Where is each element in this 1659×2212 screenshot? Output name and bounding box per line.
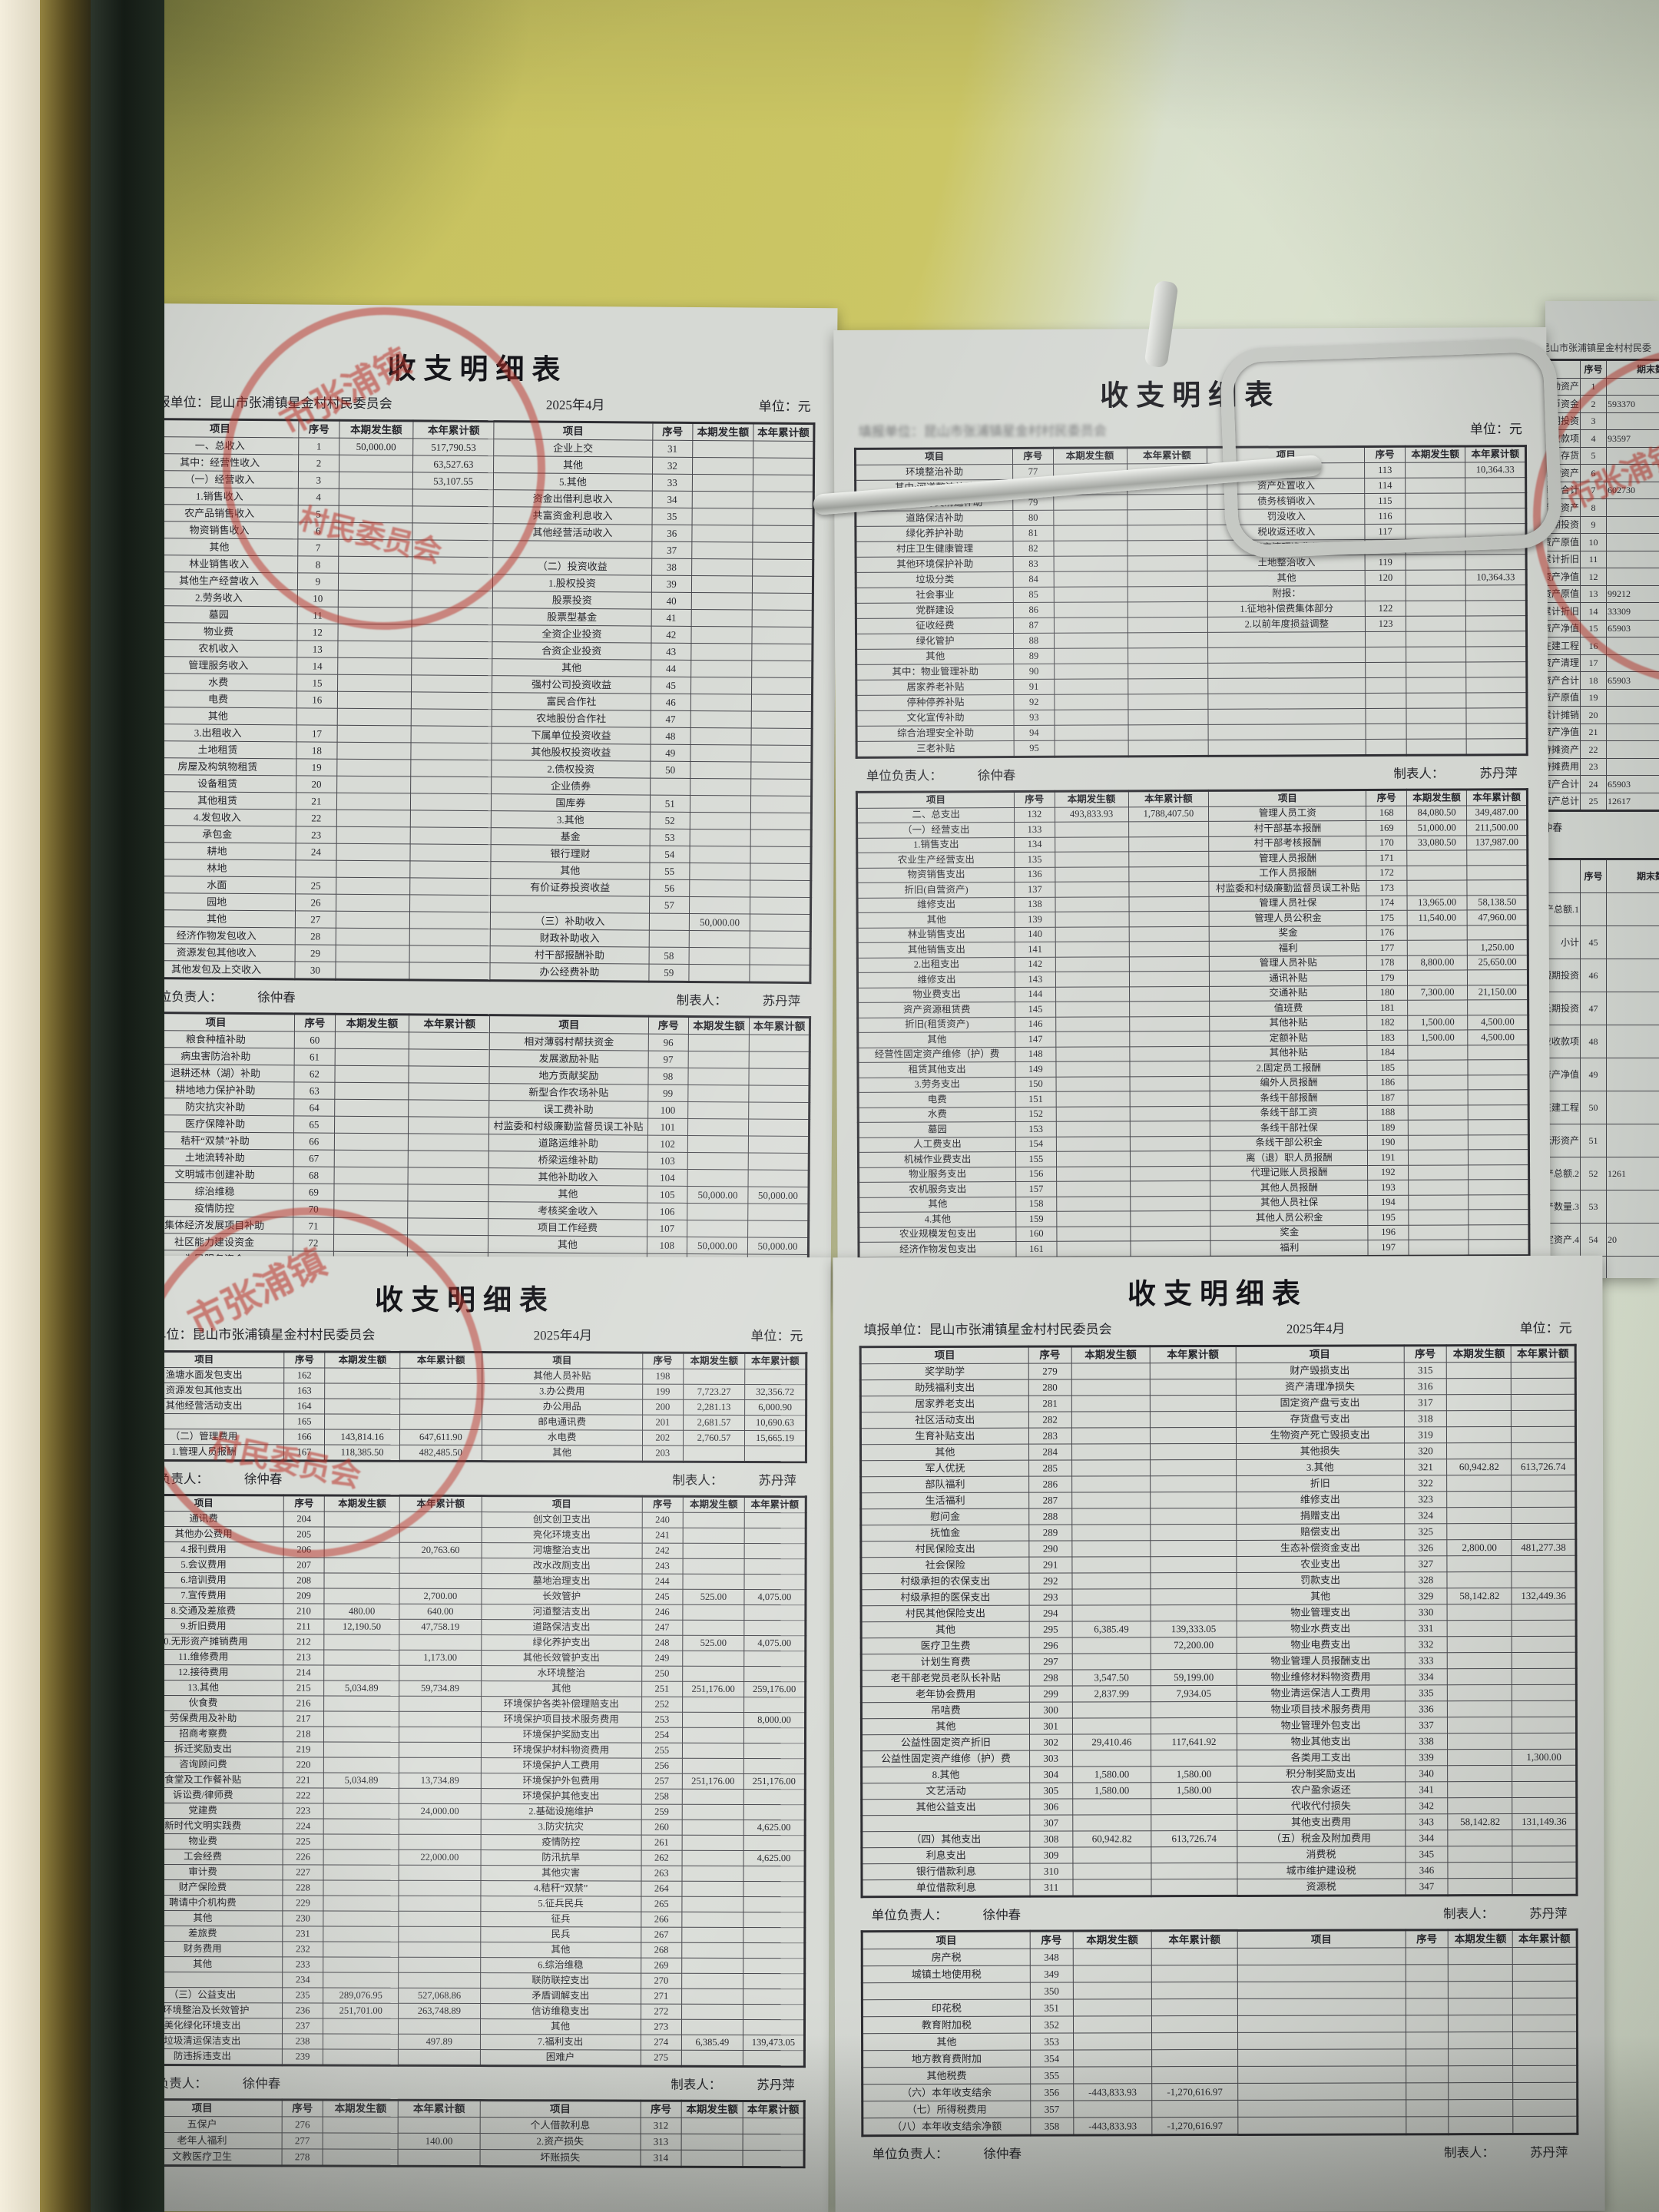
table-cell: 259: [641, 1804, 682, 1820]
table-cell: 93: [1014, 710, 1054, 725]
table-cell: 173: [1366, 880, 1406, 896]
table-cell: 3.劳务支出: [858, 1077, 1015, 1092]
table-cell: 304: [1029, 1767, 1072, 1783]
table-cell: [1130, 1226, 1210, 1241]
table-cell: [682, 1804, 743, 1820]
table-cell: 283: [1028, 1428, 1071, 1444]
table-cell: 331: [1405, 1621, 1448, 1637]
table-cell: 183: [1367, 1030, 1407, 1045]
table-cell: 209: [283, 1588, 324, 1604]
table-cell: [1448, 1846, 1512, 1863]
table-cell: [1409, 1240, 1469, 1256]
table-cell: [689, 947, 750, 965]
table-cell: 农业规模发包支出: [859, 1227, 1016, 1242]
table-row: 经营性短期投资46: [1545, 959, 1659, 992]
table-cell: [752, 677, 813, 695]
table-cell: [681, 2019, 743, 2035]
table-cell: [750, 880, 811, 898]
table-row: 文教医疗卫生278坏账损失314: [121, 2148, 804, 2167]
table-cell: 330: [1405, 1604, 1448, 1621]
table-cell: （二）投资收益: [493, 558, 651, 575]
column-header: 本期发生额: [681, 2101, 743, 2118]
table-cell: [1055, 1046, 1129, 1061]
table-cell: 70: [293, 1200, 334, 1217]
table-cell: 福利: [1210, 1240, 1368, 1257]
table-cell: [1053, 495, 1127, 510]
table-cell: [751, 728, 812, 746]
table-cell: 资金出借利息收入: [494, 490, 652, 508]
table-cell: 租赁其他支出: [858, 1062, 1015, 1078]
table-cell: 农业支出: [1237, 1556, 1405, 1573]
table-cell: 村监委和村级廉勤监督员误工补贴: [1209, 881, 1366, 896]
table-cell: 村民其他保险支出: [861, 1605, 1029, 1622]
table-cell: [334, 1116, 409, 1134]
table-cell: 346: [1405, 1863, 1448, 1879]
column-header: 序号: [1404, 1346, 1447, 1363]
table-cell: 折旧: [1236, 1475, 1404, 1492]
table-cell: [1151, 1524, 1237, 1540]
table-cell: [1407, 1000, 1468, 1015]
balance-sheet-operating-assets-table: 资产序号期末数1.经营性资产总额小计45经营性短期投资46经营性长期投资47经营…: [1545, 858, 1659, 1278]
table-cell: [1054, 648, 1128, 664]
table-cell: [1607, 654, 1659, 672]
table-cell: 49: [650, 744, 690, 761]
table-cell: 297: [1029, 1654, 1072, 1670]
strip-table-window: 资产序号期末数流动资产：1货币资金2593370短期投资3应收款项493597存…: [1545, 359, 1659, 1278]
column-header: 本期发生额: [323, 2100, 398, 2117]
table-cell: [1056, 1241, 1130, 1257]
table-cell: [1407, 940, 1468, 955]
table-cell: 32,356.72: [745, 1384, 806, 1399]
table-cell: 14: [1581, 603, 1607, 621]
table-cell: [1512, 1507, 1576, 1523]
table-cell: 65903: [1607, 620, 1659, 637]
table-cell: [1448, 1685, 1512, 1701]
table-cell: 1.经营性资产总额: [1545, 893, 1581, 926]
table-cell: 村监委和村级廉勤监督员误工补贴: [489, 1118, 647, 1135]
table-cell: [296, 708, 337, 725]
table-cell: [399, 1834, 481, 1849]
column-header: 序号: [284, 1352, 325, 1368]
table-row: 流动资产合计7602730: [1545, 482, 1659, 499]
table-cell: 村级承担的农保支出: [861, 1573, 1029, 1590]
table-cell: 28: [295, 928, 336, 945]
table-cell: [335, 1048, 409, 1066]
table-cell: [1055, 1002, 1129, 1017]
table-cell: 党群建设: [856, 603, 1013, 619]
table-cell: [1513, 2099, 1578, 2116]
table-cell: 其他人员公积金: [1210, 1210, 1368, 1226]
table-row: 经营性无形资产51: [1545, 1124, 1659, 1157]
table-cell: [1130, 1076, 1210, 1091]
expense-table-rows-276-314: 项目序号本期发生额本年累计额项目序号本期发生额本年累计额五保户276个人借款利息…: [121, 2098, 806, 2168]
table-cell: [744, 1620, 806, 1635]
table-cell: 207: [283, 1558, 324, 1573]
table-cell: [1449, 1964, 1513, 1981]
table-cell: [744, 1651, 806, 1666]
table-cell: [1055, 986, 1129, 1002]
table-cell: [1208, 709, 1366, 725]
table-cell: [1512, 1878, 1577, 1895]
table-cell: [750, 965, 810, 983]
table-cell: 345: [1405, 1846, 1448, 1863]
table-cell: 260: [641, 1820, 682, 1835]
table-cell: 349: [1030, 1965, 1073, 1982]
table-cell: [690, 694, 751, 711]
table-cell: 174: [1366, 896, 1406, 911]
table-row: 食堂及工作餐补贴2215,034.8913,734.89环境保护外包费用2572…: [122, 1772, 805, 1789]
maker-name: 苏丹萍: [1479, 766, 1518, 780]
table-row: 部队福利286折旧322: [861, 1475, 1576, 1492]
table-cell: 85: [1013, 587, 1053, 602]
table-cell: [334, 1099, 409, 1117]
table-cell: [1406, 739, 1467, 755]
table-cell: 42: [651, 626, 691, 643]
table-cell: 4.当年新购建的固定资产: [1545, 1224, 1581, 1257]
table-cell: 91: [1014, 679, 1054, 694]
table-row: 1.管理人员报酬167118,385.50482,485.50其他203: [123, 1444, 806, 1462]
table-row: 三老补贴95: [856, 739, 1527, 758]
table-cell: 误工费补助: [489, 1101, 647, 1118]
table-cell: 193: [1368, 1180, 1408, 1195]
column-header: 本期发生额: [683, 1496, 744, 1512]
table-cell: 墓地治理支出: [482, 1574, 642, 1590]
table-cell: 54: [1581, 1224, 1607, 1257]
strip-org-line: 昆山市张浦镇星金村村民委: [1545, 341, 1659, 354]
table-cell: [743, 1881, 805, 1896]
table-cell: [323, 2117, 398, 2133]
table-cell: 107: [647, 1220, 687, 1237]
table-footer: 单位负责人：徐仲春 制表人：苏丹萍: [872, 1903, 1568, 1923]
table-cell: 19: [1581, 689, 1607, 707]
table-cell: [399, 1573, 482, 1588]
table-cell: 72,200.00: [1151, 1637, 1237, 1653]
table-cell: 34: [652, 491, 693, 508]
table-cell: 其他: [856, 649, 1014, 665]
table-row: 应收款项493597: [1545, 430, 1659, 448]
table-cell: [1408, 1120, 1469, 1135]
table-cell: 计划生育费: [861, 1654, 1029, 1671]
column-header: 本年累计额: [745, 1353, 806, 1369]
table-cell: [744, 1558, 806, 1574]
table-cell: 80: [1013, 510, 1053, 525]
table-cell: 177: [1367, 940, 1407, 955]
table-cell: 9: [298, 573, 339, 590]
table-cell: 办公经费补助: [490, 963, 648, 982]
table-cell: 172: [1366, 866, 1406, 881]
table-cell: 30: [295, 962, 336, 979]
table-row: 无形资产原值19: [1545, 689, 1659, 707]
table-row: （三）公益支出235289,076.95527,068.86矛盾调解支出271: [122, 1987, 805, 2004]
table-cell: [334, 1133, 409, 1151]
table-row: 固定资产清理17: [1545, 654, 1659, 672]
table-cell: 文化宣传补助: [856, 710, 1014, 727]
table-cell: 6.综治维稳: [480, 1958, 641, 1974]
table-cell: 固定资产盘亏支出: [1236, 1395, 1404, 1412]
table-cell: [683, 1512, 744, 1528]
table-cell: [1366, 708, 1406, 724]
table-cell: [1469, 1210, 1529, 1225]
table-cell: [1512, 1830, 1577, 1846]
table-cell: 65903: [1607, 672, 1659, 690]
table-cell: [743, 2004, 804, 2019]
table-cell: [690, 727, 751, 745]
table-row: 其他230征兵266: [122, 1910, 805, 1927]
table-row: 货币资金2593370: [1545, 396, 1659, 413]
column-header: 本年累计额: [743, 2101, 804, 2118]
table-cell: 单位借款利息: [862, 1879, 1030, 1897]
table-cell: 财政补助收入: [491, 929, 649, 947]
table-row: 审计费227其他灾害263: [122, 1864, 805, 1881]
table-cell: [338, 641, 412, 658]
table-cell: [1512, 1947, 1577, 1964]
table-cell: 利息支出: [862, 1847, 1030, 1864]
table-cell: 绿化养护补助: [856, 526, 1013, 542]
table-cell: 253: [641, 1712, 682, 1727]
table-cell: [1055, 956, 1129, 972]
table-cell: [323, 1880, 399, 1896]
table-cell: 停种停养补贴: [856, 695, 1014, 711]
table-cell: [1056, 1181, 1130, 1197]
table-cell: 266: [641, 1912, 681, 1927]
column-header: 序号: [1013, 448, 1053, 464]
table-cell: 其他补贴: [1210, 1015, 1367, 1031]
table-cell: 1,580.00: [1151, 1766, 1237, 1782]
table-cell: [1151, 1750, 1237, 1766]
table-cell: 215: [283, 1681, 324, 1696]
table-cell: [753, 441, 814, 459]
table-cell: 24: [1581, 776, 1607, 793]
table-cell: 132,449.36: [1512, 1588, 1576, 1604]
table-row: 减：累计摊销20: [1545, 707, 1659, 724]
table-cell: [690, 846, 750, 863]
table-cell: 其他: [494, 456, 652, 474]
page-income-detail-3: 收支明细表 填报单位：昆山市张浦镇星金村村民委员会 2025年4月 单位：元 项…: [97, 1256, 830, 2212]
table-row: 利息支出309消费税345: [862, 1846, 1577, 1863]
table-cell: [1056, 1106, 1130, 1121]
table-cell: 613,726.74: [1151, 1830, 1237, 1846]
table-cell: 经营性短期投资: [1545, 959, 1581, 992]
table-cell: 100: [647, 1101, 688, 1118]
table-cell: [1129, 971, 1210, 986]
table-cell: [323, 1803, 399, 1819]
table-cell: [412, 624, 492, 642]
table-cell: 无形资产净值: [1545, 724, 1581, 741]
table-cell: 10,690.63: [744, 1415, 806, 1430]
table-cell: 212: [283, 1634, 324, 1650]
table-cell: 物业管理外包支出: [1237, 1717, 1405, 1734]
table-row: 老年人福利277140.002.资产损失313: [121, 2132, 804, 2150]
table-cell: [1129, 1031, 1210, 1046]
table-row: 军人优抚2853.其他32160,942.82613,726.74: [861, 1459, 1576, 1476]
table-cell: [324, 1650, 399, 1665]
column-header: 本期发生额: [693, 422, 753, 441]
table-cell: 其他: [861, 1444, 1029, 1461]
column-header: 本期发生额: [335, 1014, 409, 1032]
table-cell: [1406, 662, 1467, 677]
table-cell: 58,142.82: [1448, 1814, 1512, 1830]
table-cell: 4.秸秆“双禁”: [481, 1881, 641, 1897]
table-cell: 长期待摊资产: [1545, 741, 1581, 759]
table-cell: 24: [296, 843, 336, 860]
table-cell: 其他长效管护支出: [481, 1651, 641, 1667]
corner-shadow: [138, 0, 599, 323]
table-cell: [1366, 647, 1406, 662]
table-cell: [1073, 2050, 1151, 2067]
table-cell: 310: [1030, 1863, 1073, 1879]
table-cell: 202: [642, 1430, 683, 1445]
table-row: 公益性固定资产折旧30229,410.46117,641.92物业其他支出338: [862, 1733, 1577, 1750]
table-cell: 有价证券投资收益: [491, 879, 649, 896]
table-row: 房产税348: [862, 1947, 1577, 1965]
table-cell: [1054, 556, 1128, 571]
table-cell: [743, 2050, 804, 2066]
table-cell: [1151, 1492, 1237, 1508]
table-cell: 13,734.89: [399, 1773, 481, 1788]
table-row: 公益性固定资产维修（护）费303各类用工支出3391,300.00: [862, 1749, 1577, 1767]
table-cell: [338, 539, 412, 557]
table-cell: [1465, 555, 1526, 570]
table-cell: [1056, 1211, 1130, 1227]
table-cell: 53: [1581, 1190, 1607, 1224]
table-cell: [323, 2034, 399, 2049]
table-cell: [1071, 1492, 1150, 1508]
table-cell: [691, 660, 752, 677]
table-cell: 156: [1016, 1167, 1056, 1182]
table-cell: [691, 592, 752, 610]
table-cell: [1054, 633, 1128, 648]
table-cell: 物业项目技术服务费用: [1237, 1701, 1405, 1718]
table-cell: 其中：物业管理补助: [856, 664, 1014, 680]
table-cell: [336, 945, 410, 962]
column-header: 本年累计额: [398, 2100, 480, 2117]
table-row: 固定资产净值1565903: [1545, 620, 1659, 637]
table-cell: [1055, 942, 1129, 957]
table-cell: [1150, 1395, 1236, 1411]
table-cell: [683, 1558, 744, 1574]
table-cell: [743, 1804, 805, 1820]
table-cell: 1.销售支出: [857, 837, 1015, 853]
table-cell: 234: [283, 1972, 323, 1988]
table-cell: [410, 912, 491, 929]
table-cell: [1512, 1442, 1576, 1459]
table-cell: [1054, 587, 1128, 602]
table-cell: [1449, 2099, 1513, 2116]
table-cell: [1408, 1150, 1469, 1165]
table-cell: 55: [649, 863, 690, 879]
table-cell: 221: [283, 1773, 323, 1788]
table-cell: 64: [294, 1099, 335, 1116]
table-cell: [1072, 1589, 1151, 1605]
table-cell: [1467, 880, 1528, 896]
table-cell: 308: [1030, 1831, 1073, 1847]
table-cell: [1607, 926, 1659, 959]
table-cell: 147: [1015, 1031, 1055, 1047]
table-cell: [1054, 541, 1128, 556]
table-cell: 291: [1029, 1557, 1072, 1573]
table-cell: [1130, 1181, 1210, 1196]
table-cell: 185: [1367, 1060, 1407, 1075]
table-cell: [681, 2004, 743, 2019]
table-cell: 疫情防控: [481, 1835, 641, 1851]
table-cell: 66: [293, 1133, 334, 1150]
table-cell: 1,173.00: [399, 1650, 482, 1665]
table-cell: [1409, 1194, 1469, 1210]
table-cell: 1261: [1607, 1157, 1659, 1190]
table-cell: 管理人员补贴: [1210, 955, 1367, 971]
table-row: 渔塘水面发包支出162其他人员补贴198: [124, 1367, 806, 1384]
table-cell: 长效管护: [482, 1589, 642, 1605]
table-cell: [1406, 616, 1466, 631]
table-cell: 3: [298, 472, 339, 488]
table-cell: [1128, 678, 1208, 694]
table-cell: 3: [1581, 412, 1607, 430]
table-cell: 108: [647, 1237, 687, 1253]
table-cell: 48: [651, 727, 691, 744]
table-cell: [1448, 1750, 1512, 1766]
table-cell: 2,700.00: [399, 1588, 482, 1604]
table-cell: 314: [641, 2150, 681, 2167]
table-cell: [688, 1084, 749, 1102]
table-cell: [398, 2117, 480, 2133]
table-cell: 90: [1014, 664, 1054, 679]
table-cell: [748, 1136, 809, 1154]
table-cell: 其他: [861, 1621, 1029, 1638]
report-date: 2025年4月: [1286, 1318, 1346, 1337]
table-cell: 301: [1029, 1718, 1072, 1734]
responsible-label: 单位负责人：: [872, 1908, 948, 1922]
table-row: 其他经营活动支出164办公用品2002,281.136,000.90: [124, 1398, 806, 1415]
table-row: 吊唁费300物业项目技术服务费用336: [861, 1700, 1576, 1718]
table-cell: 89: [1014, 648, 1054, 664]
column-header: 本年累计额: [744, 1496, 806, 1512]
table-cell: [399, 1911, 481, 1926]
table-cell: 162: [284, 1368, 325, 1383]
table-cell: [336, 776, 411, 793]
table-cell: [1607, 551, 1659, 568]
table-cell: 322: [1404, 1475, 1447, 1492]
table-cell: [862, 1815, 1030, 1832]
table-cell: 300: [1029, 1702, 1072, 1718]
table-cell: [399, 1558, 482, 1573]
table-cell: [1053, 525, 1127, 541]
table-cell: 12: [1581, 568, 1607, 586]
table-cell: 175: [1367, 910, 1407, 926]
table-row: 五保户276个人借款利息312: [121, 2116, 804, 2134]
table-cell: 管理人员公积金: [1209, 911, 1366, 926]
table-cell: [333, 1200, 408, 1218]
table-cell: 股票型基金: [493, 608, 651, 626]
table-row: 党建费22324,000.002.基础设施维护259: [122, 1803, 805, 1820]
table-row: 生产性生物资产净值12: [1545, 568, 1659, 586]
table-cell: 坏账损失: [480, 2150, 641, 2167]
table-cell: 35: [652, 508, 693, 525]
table-cell: 118,385.50: [325, 1445, 400, 1461]
table-cell: 349,487.00: [1467, 805, 1528, 820]
table-cell: [1466, 616, 1527, 631]
table-cell: 101: [647, 1118, 688, 1135]
table-cell: [1073, 1965, 1151, 1982]
table-cell: 143,814.16: [325, 1429, 400, 1445]
table-cell: 5,034.89: [324, 1681, 399, 1696]
table-cell: 城市维护建设税: [1237, 1863, 1406, 1879]
table-cell: 其他人员社保: [1210, 1195, 1368, 1210]
table-cell: [1448, 1798, 1512, 1814]
maker-name: 苏丹萍: [1530, 2145, 1568, 2160]
table-cell: 其他: [480, 2019, 641, 2035]
table-cell: 个人借款利息: [480, 2118, 641, 2134]
table-cell: [1406, 601, 1466, 616]
